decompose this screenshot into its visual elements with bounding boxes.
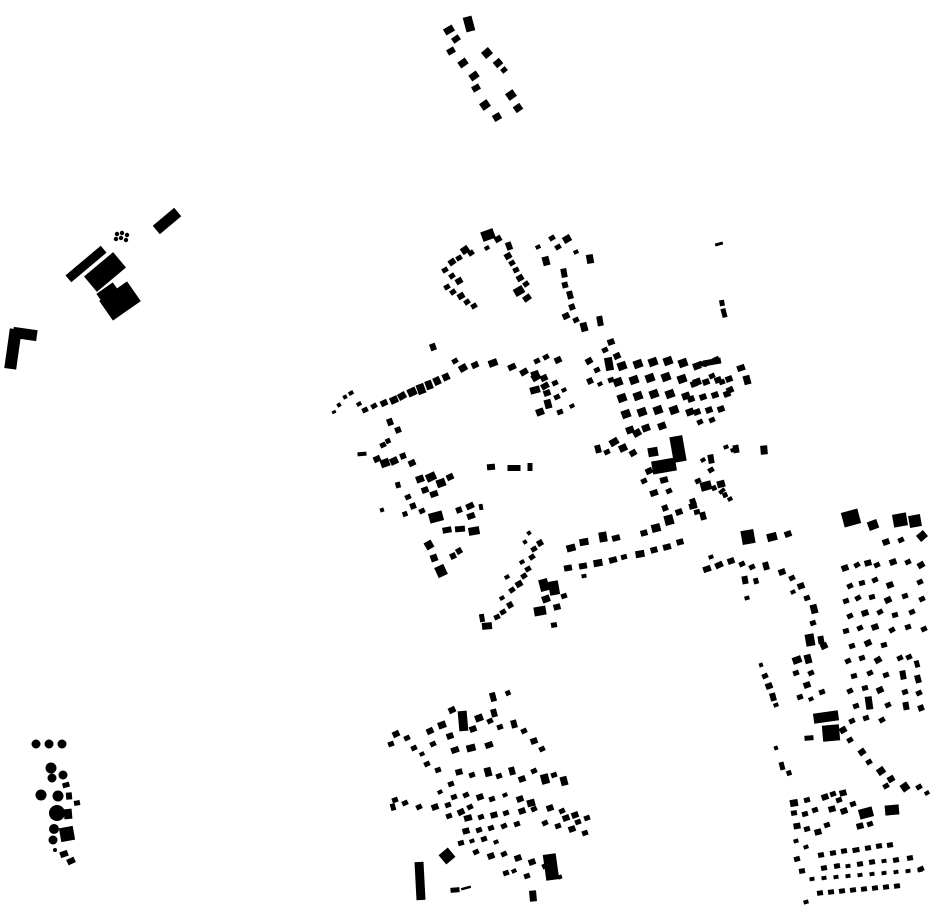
building-footprint [885, 804, 900, 815]
building-footprint [894, 883, 901, 889]
tree-symbol [115, 232, 119, 236]
building-footprint [581, 574, 587, 579]
building-footprint [817, 890, 824, 896]
building-footprint [850, 887, 857, 893]
building-footprint [455, 526, 465, 533]
building-footprint [872, 885, 879, 891]
building-footprint [905, 869, 911, 874]
tree-symbol [124, 238, 128, 242]
tree-symbol [125, 233, 129, 237]
building-footprint [892, 512, 908, 527]
building-footprint [791, 810, 798, 816]
building-footprint [529, 890, 537, 902]
building-footprint [760, 445, 768, 455]
building-footprint [789, 799, 798, 807]
building-footprint [487, 464, 495, 471]
tree-symbol [114, 237, 118, 241]
building-footprint [66, 792, 73, 799]
building-footprint [865, 845, 872, 851]
building-footprint [828, 889, 835, 895]
building-footprint [841, 848, 848, 854]
building-footprint [793, 822, 801, 829]
building-footprint [458, 711, 469, 732]
building-footprint [907, 855, 914, 861]
building-footprint [740, 529, 755, 545]
tree-symbol [45, 740, 54, 749]
building-footprint [818, 852, 825, 858]
building-footprint [799, 868, 806, 874]
tree-symbol [46, 763, 57, 774]
map-background [0, 0, 930, 924]
building-footprint [893, 857, 900, 863]
building-footprint [821, 865, 828, 871]
building-footprint [719, 300, 725, 307]
building-footprint [881, 859, 887, 864]
building-footprint [804, 735, 813, 741]
tree-symbol [53, 848, 57, 852]
tree-symbol [36, 790, 47, 801]
tree-symbol [120, 231, 124, 235]
building-footprint [834, 863, 841, 869]
tree-symbol [119, 236, 123, 240]
building-footprint [869, 859, 876, 865]
building-footprint [893, 870, 899, 875]
building-footprint [551, 622, 558, 628]
building-footprint [845, 864, 851, 869]
building-footprint [876, 843, 883, 849]
building-footprint [861, 886, 868, 892]
tree-symbol [49, 824, 59, 834]
building-footprint [598, 531, 608, 542]
tree-symbol [59, 771, 68, 780]
footprint-map [0, 0, 930, 924]
building-footprint [822, 724, 840, 741]
building-footprint [450, 887, 459, 893]
tree-symbol [48, 774, 57, 783]
building-footprint [845, 874, 851, 879]
building-footprint [857, 873, 863, 878]
building-footprint [74, 800, 81, 806]
tree-symbol [49, 836, 58, 845]
building-footprint [821, 876, 827, 881]
building-footprint [482, 622, 493, 630]
building-footprint [809, 877, 815, 882]
building-footprint [883, 884, 890, 890]
building-footprint [881, 871, 887, 876]
building-footprint [357, 452, 366, 457]
building-footprint [508, 465, 521, 471]
building-footprint [839, 888, 846, 894]
tree-symbol [53, 791, 64, 802]
tree-symbol [58, 740, 67, 749]
tree-symbol [32, 740, 41, 749]
building-footprint [887, 842, 894, 848]
tree-symbol [49, 805, 65, 821]
building-footprint [647, 447, 658, 458]
building-footprint [908, 514, 922, 528]
building-footprint [857, 861, 864, 867]
building-footprint [833, 875, 839, 880]
footprint-map-container [0, 0, 930, 924]
building-footprint [830, 850, 837, 856]
building-footprint [59, 826, 75, 842]
building-footprint [528, 463, 533, 471]
building-footprint [869, 872, 875, 877]
